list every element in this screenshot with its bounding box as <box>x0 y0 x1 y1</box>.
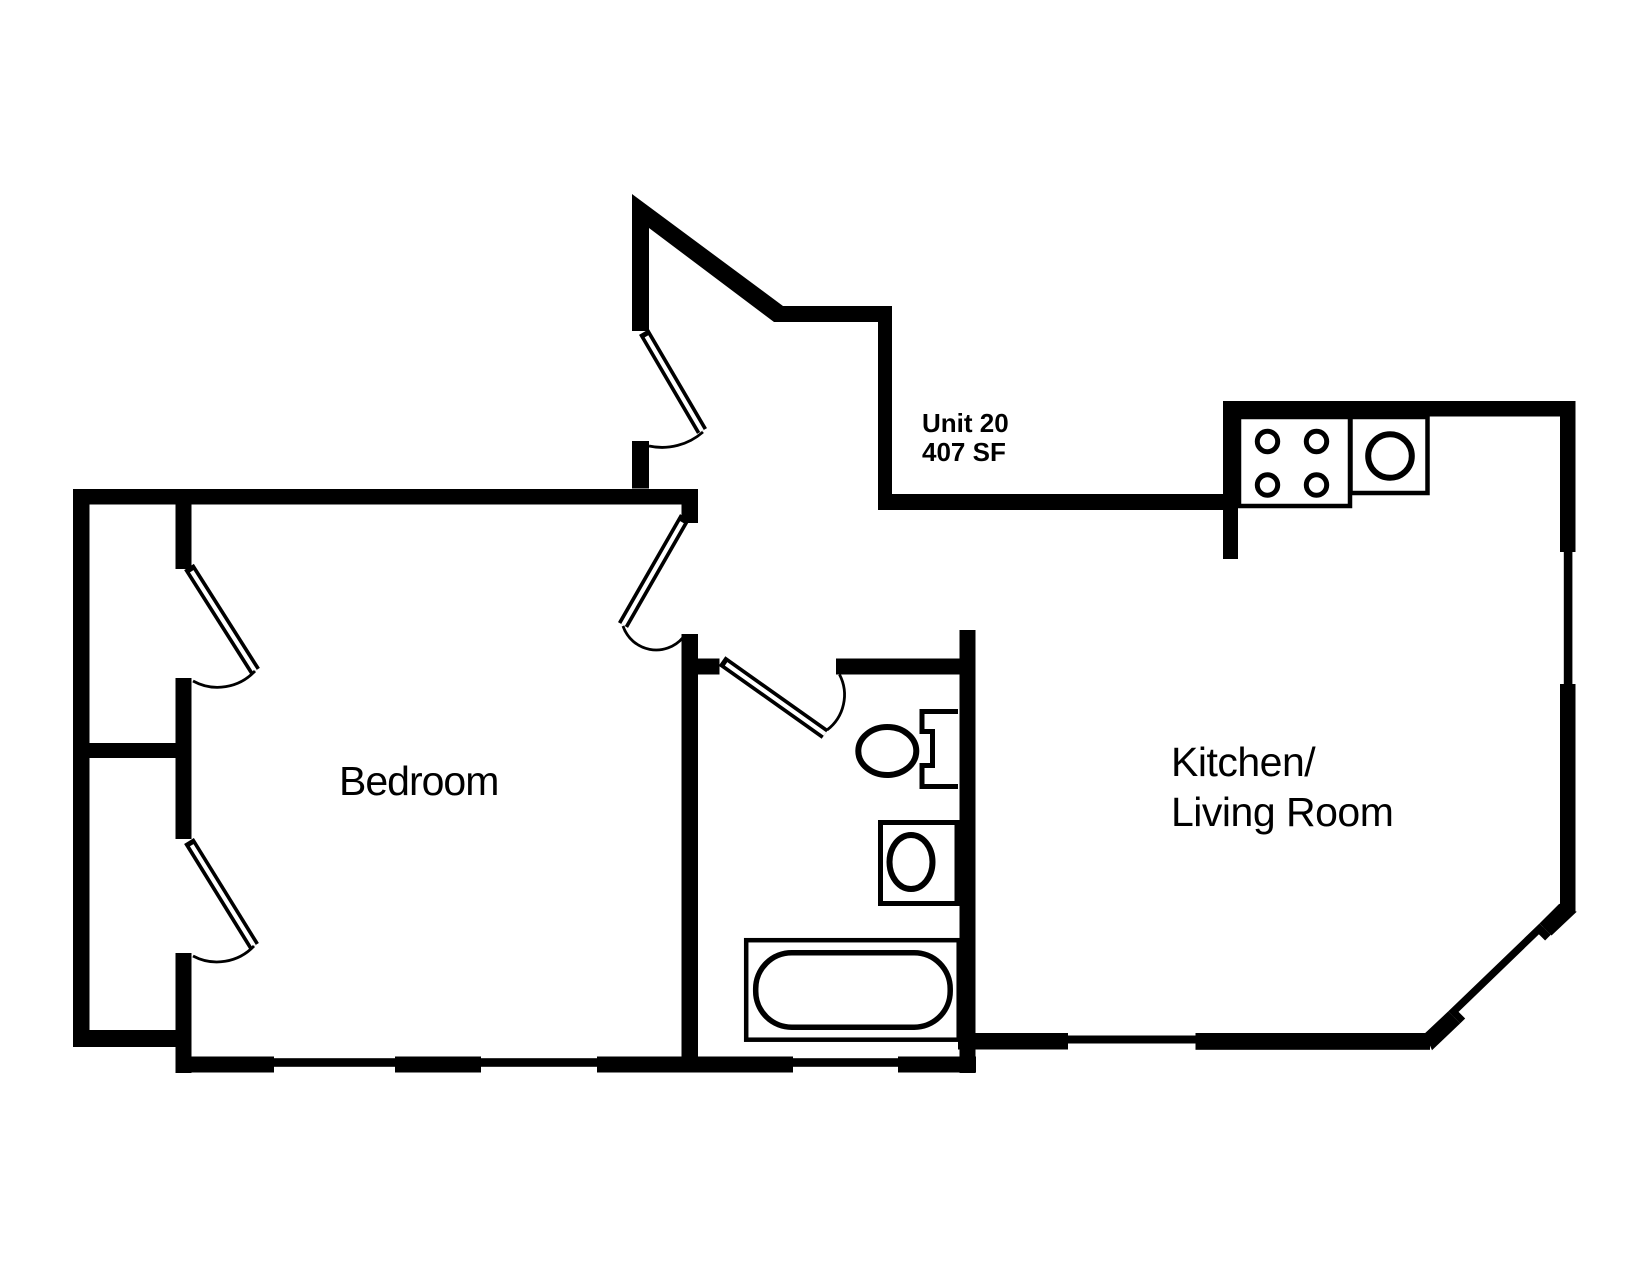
svg-text:Living Room: Living Room <box>1171 789 1393 835</box>
svg-text:Unit 20: Unit 20 <box>922 408 1009 438</box>
svg-text:407 SF: 407 SF <box>922 437 1006 467</box>
svg-text:Bedroom: Bedroom <box>339 758 498 804</box>
svg-text:Kitchen/: Kitchen/ <box>1171 739 1316 785</box>
